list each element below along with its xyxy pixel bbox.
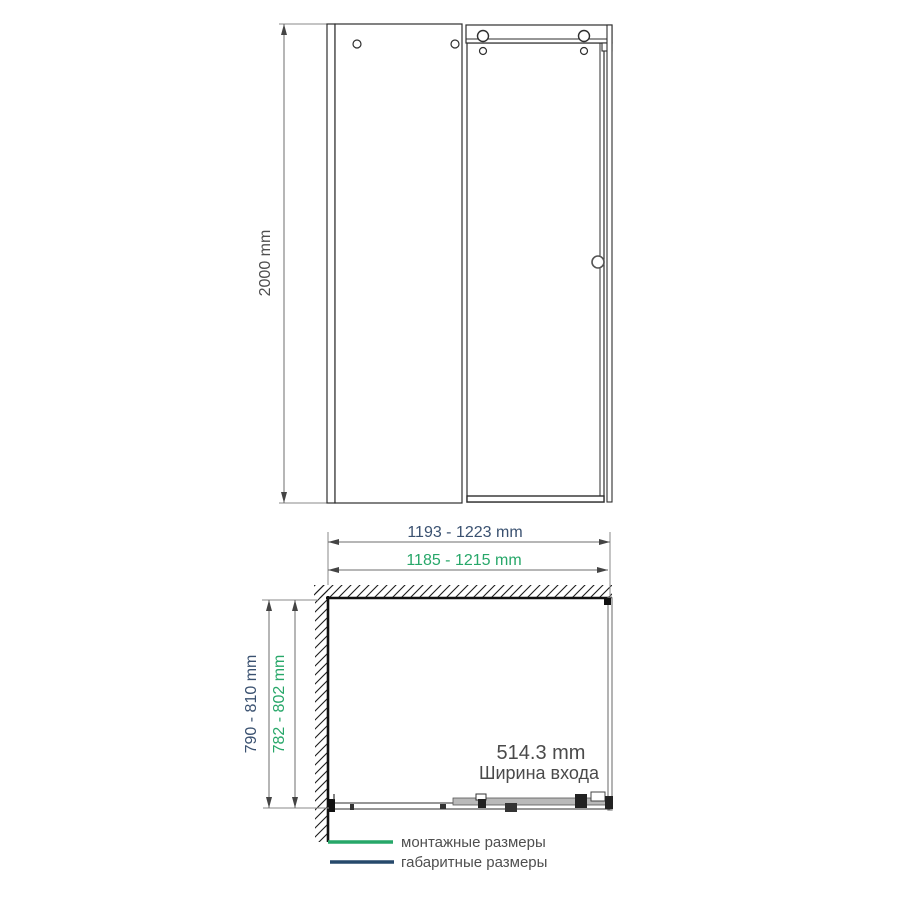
- guide-block-left: [505, 803, 517, 812]
- shower-enclosure-dimension-drawing: 2000 mm: [0, 0, 900, 900]
- roller-carriage-left: [478, 799, 486, 808]
- mounting-width-label: 1185 - 1215 mm: [406, 552, 521, 569]
- arrow-down-icon: [292, 797, 298, 808]
- arrow-up-icon: [266, 600, 272, 611]
- arrow-right-icon: [599, 539, 610, 545]
- rail-detail-2: [440, 804, 446, 809]
- arrow-up-icon: [281, 24, 287, 35]
- entrance-width-label: Ширина входа: [479, 763, 600, 783]
- drawing-svg: 2000 mm: [0, 0, 900, 900]
- wall-left-hatch: [315, 585, 328, 842]
- fixed-panel-hole-left: [353, 40, 361, 48]
- roller-bottom-left: [480, 48, 487, 55]
- legend-overall-label: габаритные размеры: [401, 854, 547, 871]
- arrow-left-icon: [328, 539, 339, 545]
- arrow-left-icon: [328, 567, 339, 573]
- arrow-right-icon: [597, 567, 608, 573]
- fixed-panel-hole-right: [451, 40, 459, 48]
- side-panel-plan: [608, 598, 612, 810]
- mounting-depth-label: 782 - 802 mm: [271, 655, 288, 754]
- roller-carriage-right: [575, 794, 587, 808]
- door-stopper-box: [591, 792, 605, 801]
- roller-top-left: [478, 31, 489, 42]
- fixed-glass-panel: [335, 24, 462, 503]
- sliding-door-glass: [467, 43, 604, 502]
- right-wall-profile: [607, 25, 612, 502]
- height-dimension-label: 2000 mm: [257, 230, 274, 297]
- arrow-down-icon: [266, 797, 272, 808]
- left-wall-profile: [327, 24, 335, 503]
- door-handle-knob: [592, 256, 604, 268]
- roller-top-right: [579, 31, 590, 42]
- plan-view: 1193 - 1223 mm 1185 - 1215 mm 790 - 810 …: [243, 524, 613, 842]
- front-elevation: 2000 mm: [257, 24, 612, 503]
- legend-mounting-label: монтажные размеры: [401, 834, 546, 851]
- overall-depth-label: 790 - 810 mm: [243, 655, 260, 754]
- door-bottom-guide: [467, 496, 604, 502]
- overall-width-label: 1193 - 1223 mm: [407, 524, 522, 541]
- corner-connector-plan: [605, 796, 613, 809]
- roller-bottom-right: [581, 48, 588, 55]
- wall-top-hatch: [314, 585, 612, 598]
- arrow-up-icon: [292, 600, 298, 611]
- wall-fixing-clamp-left: [329, 799, 335, 812]
- entrance-width-value: 514.3 mm: [497, 742, 586, 764]
- rail-detail-1: [350, 804, 354, 810]
- arrow-down-icon: [281, 492, 287, 503]
- legend: монтажные размеры габаритные размеры: [328, 834, 547, 871]
- side-panel-wall-bracket: [604, 598, 611, 605]
